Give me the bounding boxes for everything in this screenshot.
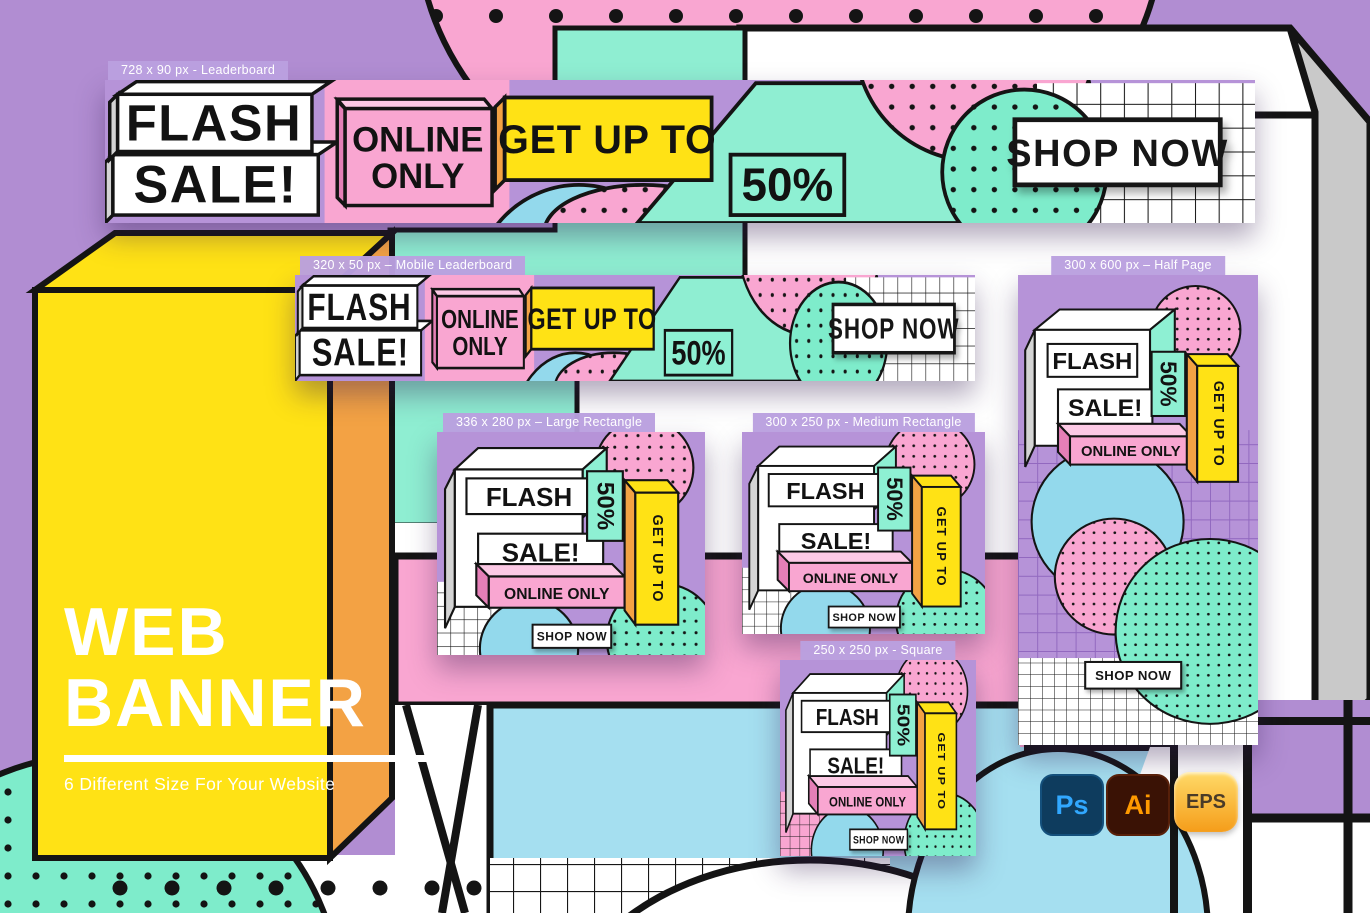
page-subtitle: 6 Different Size For Your Website <box>64 774 442 795</box>
photoshop-icon: Ps <box>1040 774 1104 836</box>
svg-text:ONLINE ONLY: ONLINE ONLY <box>829 795 906 810</box>
svg-text:SHOP NOW: SHOP NOW <box>1006 133 1229 175</box>
svg-text:GET UP TO: GET UP TO <box>934 507 949 587</box>
size-label-leaderboard: 728 x 90 px - Leaderboard <box>108 61 288 80</box>
svg-text:FLASH: FLASH <box>816 706 879 731</box>
svg-text:ONLINE ONLY: ONLINE ONLY <box>504 586 610 603</box>
page-title-line2: BANNER <box>64 668 442 739</box>
banner-leaderboard: 728 x 90 px - Leaderboard SALE! FLASH <box>105 80 1255 223</box>
svg-text:SALE!: SALE! <box>1068 395 1142 422</box>
svg-text:50%: 50% <box>591 482 618 530</box>
svg-text:SHOP NOW: SHOP NOW <box>853 835 905 847</box>
banner-square: 250 x 250 px - Square FLASH SALE! ONLINE… <box>780 660 976 856</box>
svg-text:50%: 50% <box>742 159 834 211</box>
size-label-large-rectangle: 336 x 280 px – Large Rectangle <box>443 413 655 432</box>
svg-text:SHOP NOW: SHOP NOW <box>537 630 608 644</box>
svg-text:FLASH: FLASH <box>1052 348 1132 375</box>
svg-text:SHOP NOW: SHOP NOW <box>1095 668 1171 683</box>
svg-text:GET UP TO: GET UP TO <box>498 118 716 162</box>
svg-text:50%: 50% <box>882 477 907 521</box>
banner-half-page: 300 x 600 px – Half Page FLASH SALE! ONL… <box>1018 275 1258 745</box>
svg-text:SALE!: SALE! <box>312 331 409 374</box>
illustrator-icon: Ai <box>1106 774 1170 836</box>
svg-text:GET UP TO: GET UP TO <box>935 732 946 810</box>
svg-text:FLASH: FLASH <box>786 478 864 504</box>
svg-text:GET UP TO: GET UP TO <box>649 514 665 602</box>
banner-large-rectangle: 336 x 280 px – Large Rectangle FLASH SAL… <box>437 432 705 655</box>
svg-text:ONLINE ONLY: ONLINE ONLY <box>1081 444 1181 460</box>
svg-text:SALE!: SALE! <box>133 156 297 214</box>
poster-canvas: 728 x 90 px - Leaderboard SALE! FLASH <box>0 0 1370 913</box>
size-label-half-page: 300 x 600 px – Half Page <box>1051 256 1225 275</box>
svg-text:SHOP NOW: SHOP NOW <box>828 314 960 345</box>
size-label-medium-rectangle: 300 x 250 px - Medium Rectangle <box>752 413 974 432</box>
svg-text:SHOP NOW: SHOP NOW <box>832 612 896 624</box>
svg-text:ONLY: ONLY <box>452 332 508 361</box>
svg-text:SALE!: SALE! <box>801 528 871 554</box>
svg-text:GET UP TO: GET UP TO <box>1210 381 1226 467</box>
title-underline <box>64 755 442 762</box>
svg-text:ONLY: ONLY <box>371 157 464 196</box>
svg-text:GET UP TO: GET UP TO <box>527 303 656 336</box>
svg-text:FLASH: FLASH <box>486 484 572 512</box>
svg-text:50%: 50% <box>893 704 913 746</box>
svg-text:50%: 50% <box>671 333 725 372</box>
svg-text:FLASH: FLASH <box>126 94 302 151</box>
banner-medium-rectangle: 300 x 250 px - Medium Rectangle FLASH SA… <box>742 432 985 634</box>
eps-format-icon: EPS <box>1174 772 1238 832</box>
page-title-line1: WEB <box>64 597 442 668</box>
size-label-mobile-leaderboard: 320 x 50 px – Mobile Leaderboard <box>300 256 525 275</box>
svg-text:ONLINE ONLY: ONLINE ONLY <box>803 570 899 586</box>
svg-text:ONLINE: ONLINE <box>441 305 519 334</box>
size-label-square: 250 x 250 px - Square <box>800 641 955 660</box>
svg-text:FLASH: FLASH <box>307 287 411 329</box>
svg-text:50%: 50% <box>1155 361 1181 406</box>
hero-title-block: WEB BANNER 6 Different Size For Your Web… <box>64 597 442 795</box>
svg-text:ONLINE: ONLINE <box>352 120 483 159</box>
banner-mobile-leaderboard: 320 x 50 px – Mobile Leaderboard SALE! F… <box>295 275 975 381</box>
